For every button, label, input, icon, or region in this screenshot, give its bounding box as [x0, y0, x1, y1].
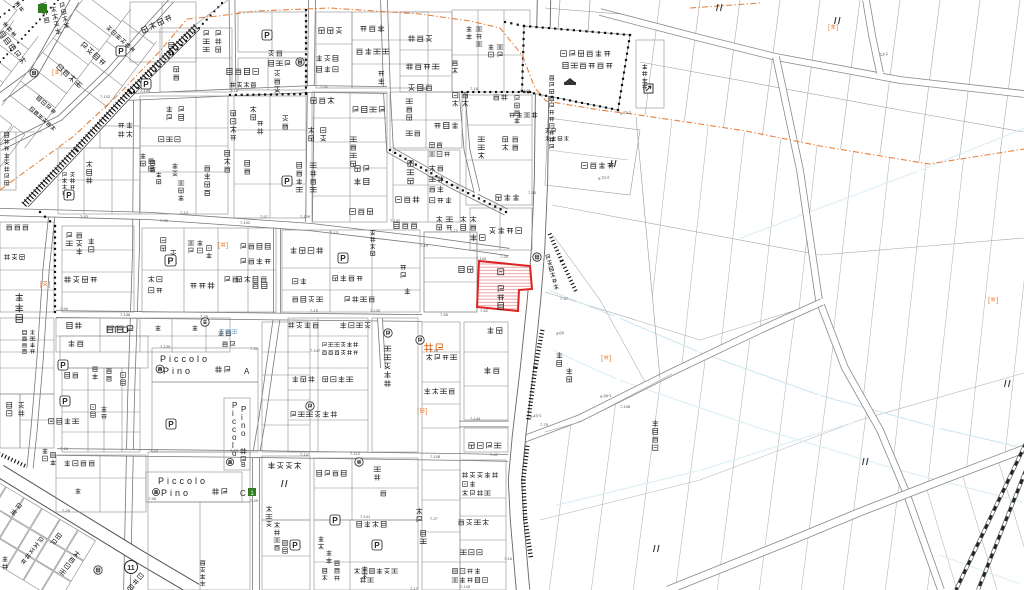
svg-text:7-32: 7-32	[320, 84, 329, 89]
svg-text:7-57: 7-57	[260, 214, 269, 219]
svg-text:P: P	[167, 256, 173, 266]
svg-text:A: A	[244, 367, 250, 376]
svg-text:Pino: Pino	[163, 366, 193, 376]
svg-text:7-108: 7-108	[430, 454, 441, 459]
svg-text:7-15: 7-15	[310, 308, 319, 313]
svg-text:[: [	[218, 243, 220, 250]
svg-text:7-102: 7-102	[100, 94, 111, 99]
svg-text:P: P	[62, 397, 68, 406]
svg-text:7-138: 7-138	[120, 312, 131, 317]
svg-text:7-24: 7-24	[500, 254, 509, 259]
svg-text:7-12: 7-12	[450, 228, 459, 233]
svg-text:7-16: 7-16	[504, 556, 513, 561]
svg-text:7-109: 7-109	[300, 214, 311, 219]
svg-text:7-25: 7-25	[62, 508, 71, 513]
svg-text:]: ]	[425, 409, 427, 416]
svg-text:]: ]	[48, 282, 50, 289]
svg-text:7-139: 7-139	[160, 344, 171, 349]
svg-text:7-39: 7-39	[160, 218, 169, 223]
svg-text:[: [	[52, 70, 54, 77]
svg-text:7-94: 7-94	[60, 306, 69, 311]
svg-text:[: [	[988, 298, 990, 305]
svg-text:7-49: 7-49	[250, 498, 259, 503]
svg-text:P: P	[332, 516, 338, 525]
svg-text:P: P	[66, 191, 72, 200]
svg-text:P: P	[118, 47, 124, 56]
svg-text:7-142: 7-142	[390, 218, 401, 223]
svg-text:7-62: 7-62	[480, 308, 489, 313]
svg-text:7-19: 7-19	[420, 243, 429, 248]
svg-text:7-16: 7-16	[230, 88, 239, 93]
svg-text:7-35: 7-35	[528, 190, 537, 195]
svg-text:P: P	[340, 254, 346, 263]
svg-text:P: P	[60, 361, 66, 370]
svg-text:[: [	[828, 25, 830, 32]
svg-text:7-147: 7-147	[300, 452, 311, 457]
svg-text:7-13: 7-13	[330, 230, 339, 235]
svg-text:7-145: 7-145	[140, 88, 151, 93]
svg-text:]: ]	[996, 298, 998, 305]
svg-text:7-25: 7-25	[200, 314, 209, 319]
svg-text:7-145: 7-145	[460, 584, 471, 589]
svg-text:[: [	[601, 356, 603, 363]
svg-text:7-147: 7-147	[310, 348, 321, 353]
svg-text:7-130: 7-130	[370, 308, 381, 313]
svg-text:ITO: ITO	[106, 325, 133, 335]
svg-text:Pino: Pino	[161, 488, 191, 498]
svg-text:P: P	[292, 541, 298, 550]
svg-text:C: C	[240, 489, 246, 498]
svg-text:7-10: 7-10	[150, 448, 159, 453]
svg-text:o: o	[241, 429, 246, 438]
svg-text:7-79: 7-79	[430, 348, 439, 353]
svg-text:7-18: 7-18	[60, 446, 69, 451]
svg-text:7-37: 7-37	[560, 296, 569, 301]
svg-text:7-148: 7-148	[520, 88, 531, 93]
svg-text:[: [	[417, 409, 419, 416]
svg-text:P: P	[284, 177, 290, 186]
svg-text:P: P	[374, 541, 380, 550]
svg-text:7-96: 7-96	[148, 496, 157, 501]
svg-text:7-144: 7-144	[470, 416, 481, 421]
svg-text:7-75: 7-75	[540, 422, 549, 427]
svg-text:7-141: 7-141	[360, 514, 371, 519]
svg-text:B: B	[241, 462, 246, 469]
svg-text:7-17: 7-17	[410, 586, 419, 590]
svg-text:7-23: 7-23	[230, 448, 239, 453]
svg-text:7-31: 7-31	[250, 346, 259, 351]
svg-text:[: [	[40, 282, 42, 289]
svg-text:]: ]	[226, 243, 228, 250]
svg-text:7-16: 7-16	[470, 86, 479, 91]
svg-text:]: ]	[609, 356, 611, 363]
svg-text:P: P	[168, 420, 174, 429]
svg-text:7-112: 7-112	[350, 451, 361, 456]
svg-text:7-83: 7-83	[80, 214, 89, 219]
svg-text:P: P	[264, 31, 270, 40]
svg-text:7-13: 7-13	[180, 210, 189, 215]
svg-text:7-55: 7-55	[440, 312, 449, 317]
svg-text:7-47: 7-47	[490, 452, 499, 457]
svg-text:]: ]	[836, 25, 838, 32]
svg-text:7-143: 7-143	[476, 256, 487, 261]
svg-text:Piccolo: Piccolo	[160, 354, 210, 364]
svg-text:7-27: 7-27	[430, 516, 439, 521]
svg-text:7-108: 7-108	[620, 404, 631, 409]
svg-text:7-58: 7-58	[420, 86, 429, 91]
svg-text:11: 11	[127, 565, 135, 572]
svg-text:7-102: 7-102	[240, 220, 251, 225]
svg-text:Piccolo: Piccolo	[158, 476, 208, 486]
